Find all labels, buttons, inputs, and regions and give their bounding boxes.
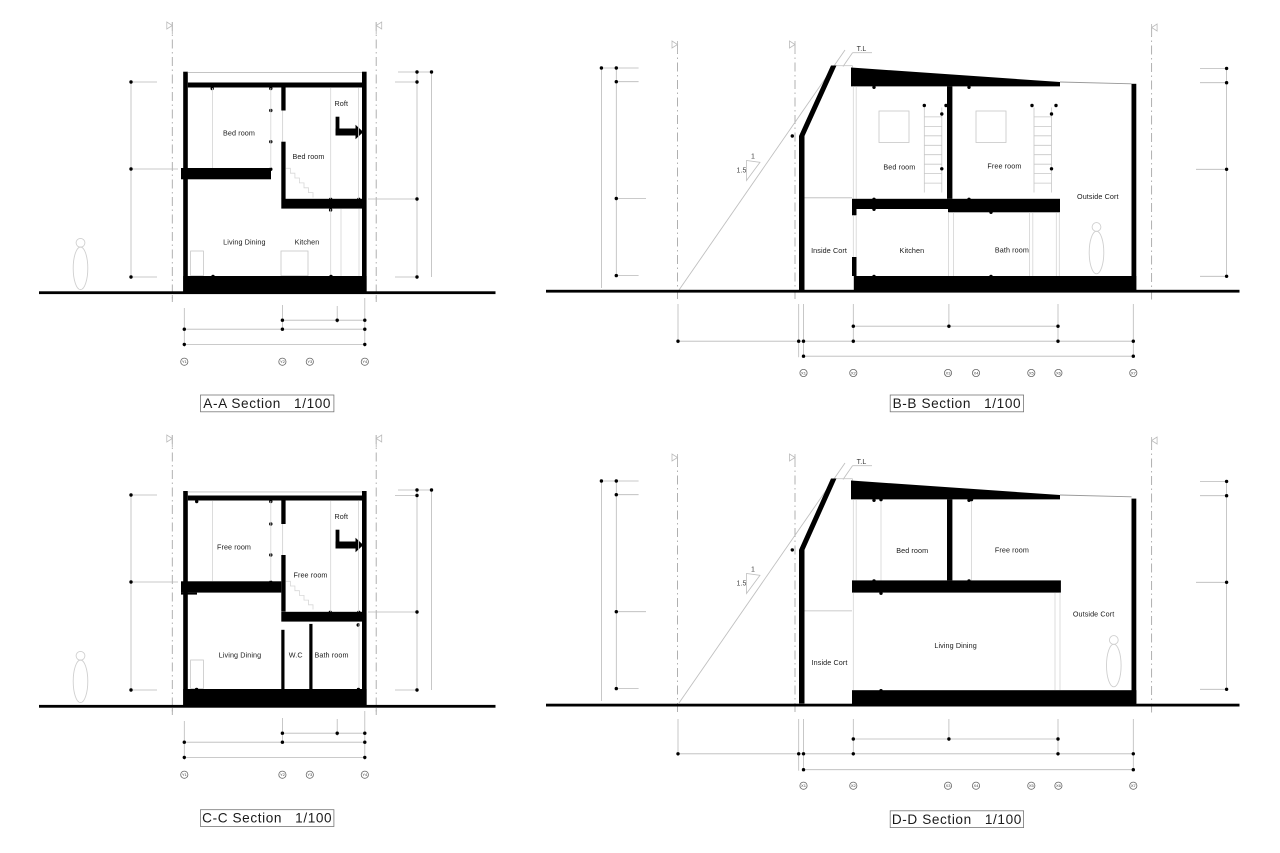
svg-text:X6: X6: [1056, 783, 1062, 788]
svg-text:Kitchen: Kitchen: [900, 246, 925, 255]
svg-text:Living Dining: Living Dining: [223, 238, 265, 247]
svg-text:Free room: Free room: [293, 571, 327, 580]
svg-text:Y2: Y2: [280, 772, 286, 777]
svg-text:C-C Section 1/100: C-C Section 1/100: [202, 811, 332, 826]
svg-text:1: 1: [751, 567, 755, 574]
svg-text:X4: X4: [974, 370, 980, 375]
svg-text:X2: X2: [851, 783, 857, 788]
svg-text:X1: X1: [801, 370, 807, 375]
svg-text:1: 1: [751, 154, 755, 161]
svg-text:X3: X3: [946, 783, 952, 788]
svg-text:X4: X4: [974, 783, 980, 788]
svg-text:Outside Cort: Outside Cort: [1073, 610, 1115, 619]
svg-text:Roft: Roft: [335, 512, 349, 521]
svg-text:Bath room: Bath room: [995, 246, 1029, 255]
svg-text:1.5: 1.5: [736, 168, 746, 175]
svg-text:X5: X5: [1029, 370, 1035, 375]
svg-text:X1: X1: [801, 783, 807, 788]
svg-text:Y1: Y1: [182, 772, 188, 777]
svg-text:Bed room: Bed room: [293, 152, 325, 161]
svg-text:Free room: Free room: [995, 546, 1029, 555]
svg-text:W.C: W.C: [289, 651, 303, 660]
svg-text:X2: X2: [851, 370, 857, 375]
svg-text:Bed room: Bed room: [223, 129, 255, 138]
svg-text:A-A Section 1/100: A-A Section 1/100: [203, 396, 331, 411]
svg-text:T.L: T.L: [857, 46, 867, 53]
svg-text:1.5: 1.5: [736, 581, 746, 588]
svg-text:X7: X7: [1131, 370, 1137, 375]
svg-text:Living Dining: Living Dining: [219, 651, 261, 660]
svg-text:Kitchen: Kitchen: [295, 238, 320, 247]
svg-text:Inside Cort: Inside Cort: [812, 658, 848, 667]
svg-text:D-D Section 1/100: D-D Section 1/100: [892, 812, 1022, 827]
svg-text:Outside Cort: Outside Cort: [1077, 192, 1119, 201]
svg-text:Living Dining: Living Dining: [934, 641, 976, 650]
svg-text:Y1: Y1: [182, 359, 188, 364]
svg-text:Bath room: Bath room: [314, 651, 348, 660]
svg-text:Y4: Y4: [362, 359, 368, 364]
svg-text:B-B Section 1/100: B-B Section 1/100: [893, 396, 1022, 411]
svg-text:X5: X5: [1029, 783, 1035, 788]
svg-text:X6: X6: [1056, 370, 1062, 375]
svg-text:Bed room: Bed room: [896, 546, 928, 555]
svg-text:X7: X7: [1131, 783, 1137, 788]
svg-text:Inside Cort: Inside Cort: [811, 246, 847, 255]
svg-text:T.L: T.L: [857, 459, 867, 466]
svg-text:Roft: Roft: [335, 99, 349, 108]
svg-text:Y2: Y2: [280, 359, 286, 364]
svg-text:X3: X3: [946, 370, 952, 375]
svg-text:Bed room: Bed room: [883, 163, 915, 172]
svg-text:Y3: Y3: [307, 359, 313, 364]
svg-text:Y4: Y4: [362, 772, 368, 777]
svg-text:Y3: Y3: [307, 772, 313, 777]
svg-text:Free room: Free room: [987, 162, 1021, 171]
svg-text:Free room: Free room: [217, 543, 251, 552]
